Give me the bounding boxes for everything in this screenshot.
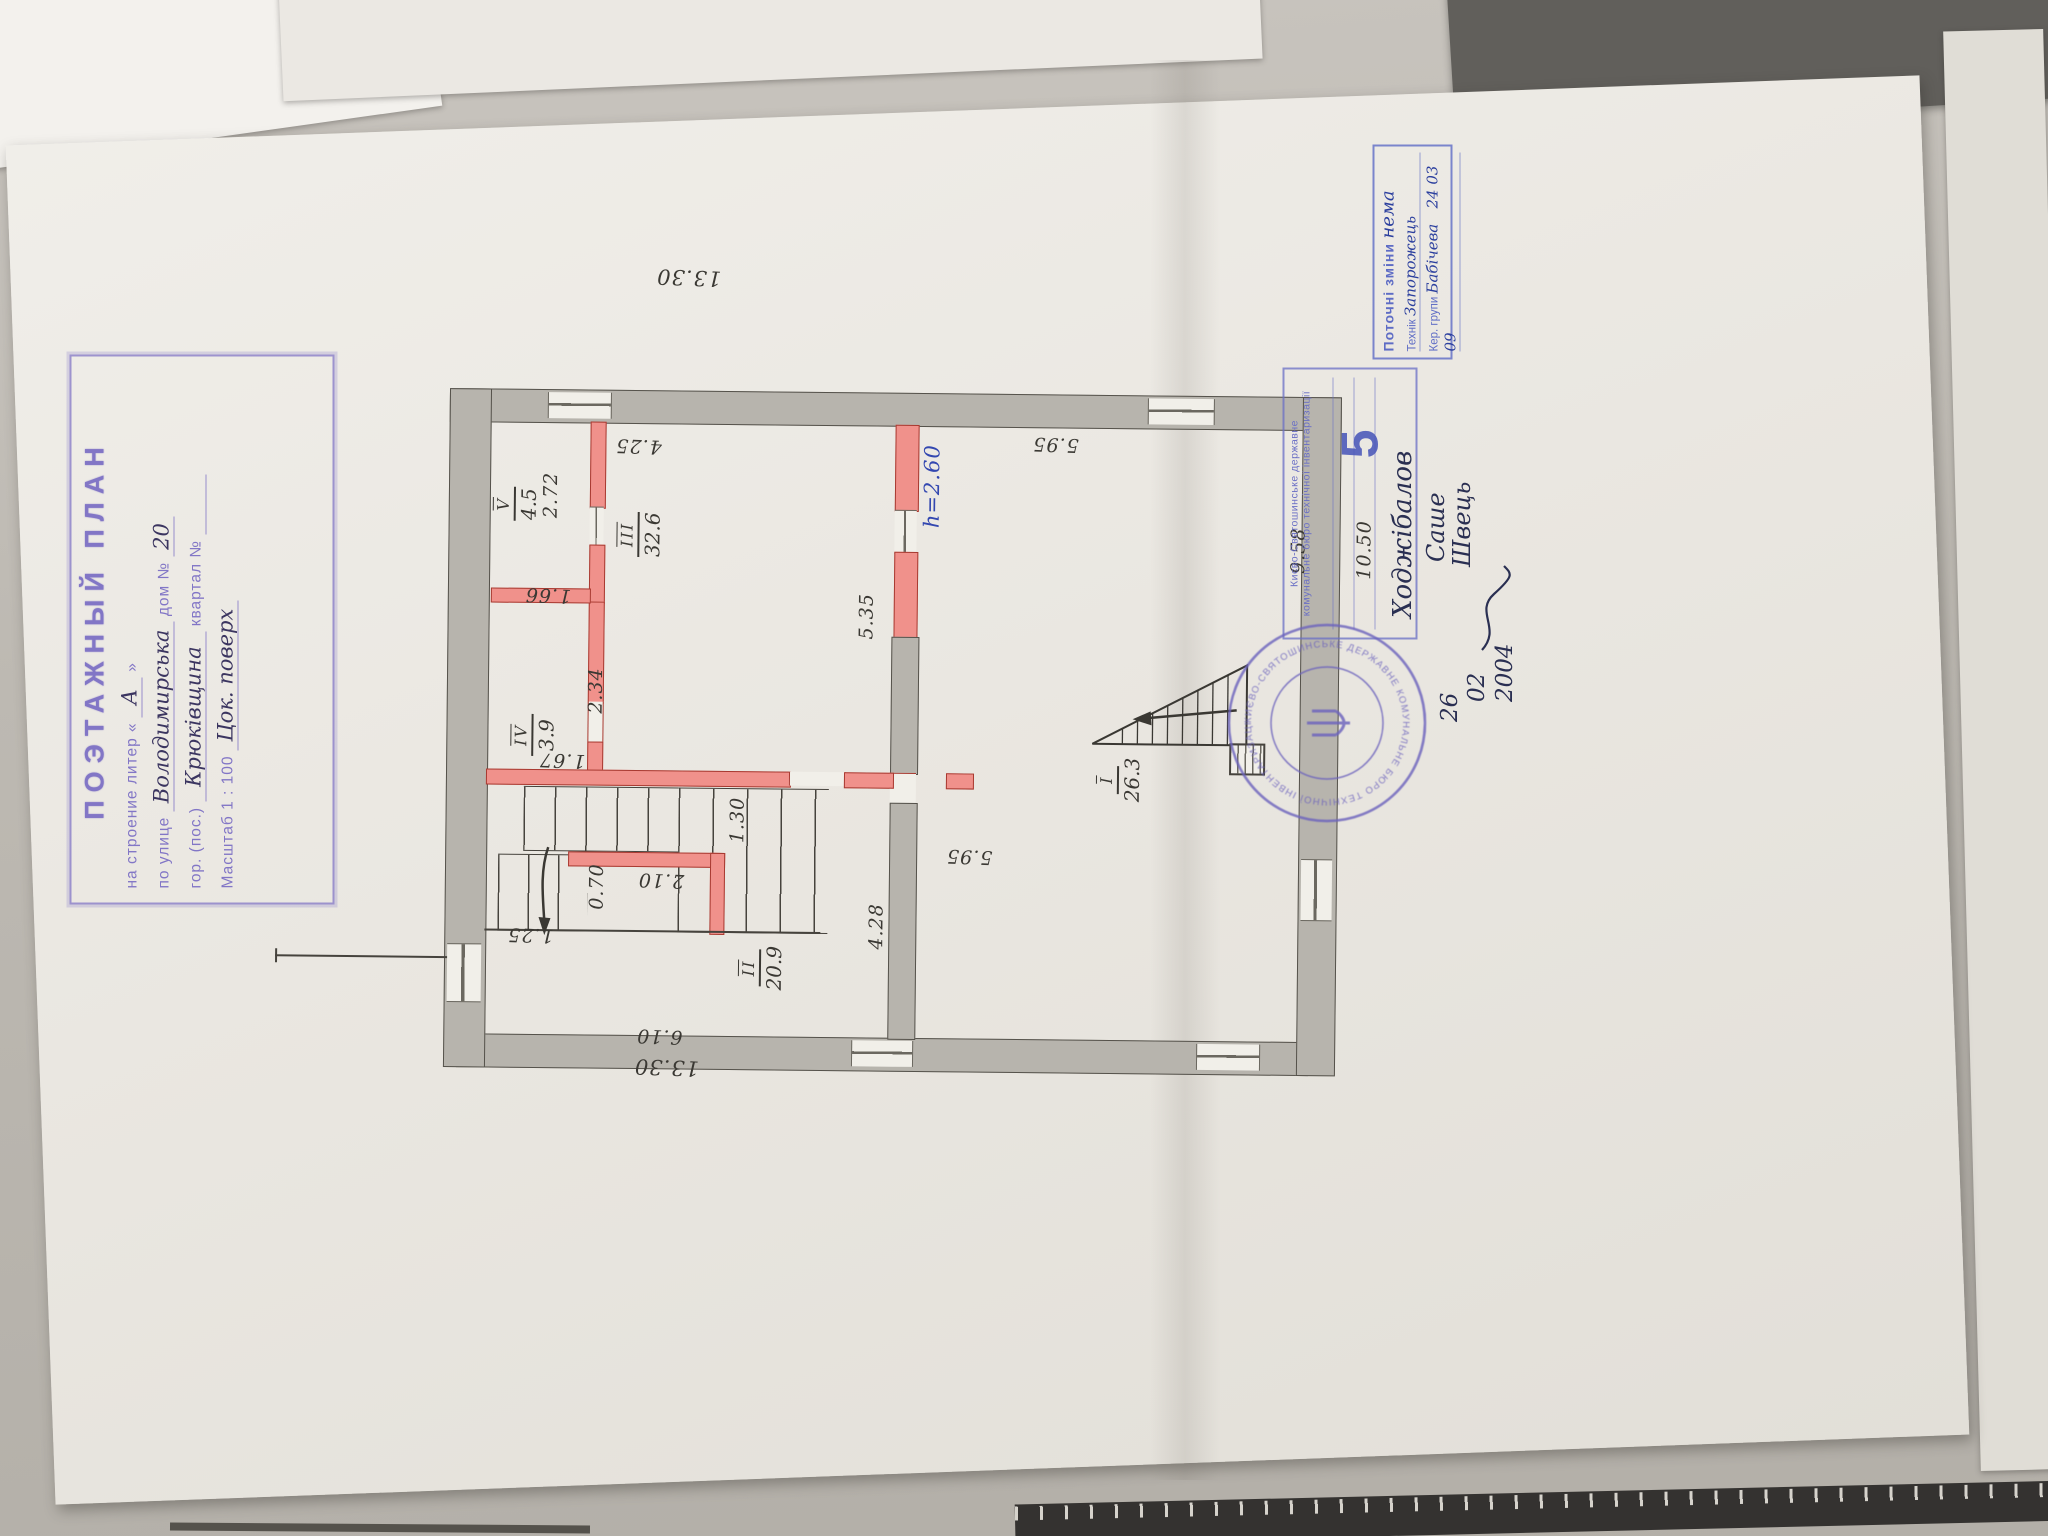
room-area: 32.6 bbox=[639, 512, 664, 557]
room-number: IV bbox=[511, 714, 533, 756]
dim-13-30-top: 13.30 bbox=[656, 264, 722, 290]
window-symbol bbox=[851, 1040, 913, 1067]
room-number: II bbox=[739, 950, 761, 987]
bti-date-year: 2004 bbox=[1492, 643, 1518, 702]
quarter-label: квартал № bbox=[188, 540, 205, 626]
dim-1-67: 1.67 bbox=[539, 748, 586, 772]
street-row: по улице Володимирська дом № 20 bbox=[150, 371, 175, 889]
dim-4-28: 4.28 bbox=[865, 903, 887, 950]
building-value: А bbox=[118, 677, 143, 717]
wall-segment bbox=[589, 545, 606, 604]
wall-segment bbox=[709, 853, 725, 935]
dim-6-10: 6.10 bbox=[636, 1024, 683, 1048]
manager-row: Кер. групи Бабічева 24 03 09 bbox=[1424, 153, 1461, 352]
room-number: III bbox=[617, 512, 639, 557]
room-number: V bbox=[494, 487, 516, 521]
window-symbol bbox=[447, 943, 482, 1002]
bti-date-day: 26 bbox=[1437, 693, 1463, 722]
window-symbol bbox=[1148, 398, 1215, 425]
manager-value: Бабічева bbox=[1424, 224, 1442, 294]
wall-segment bbox=[590, 422, 607, 509]
dim-2-72: 2.72 bbox=[540, 472, 562, 519]
wall-segment bbox=[895, 425, 920, 512]
scale-row: Масштаб 1 : 100 Цок. поверх bbox=[214, 371, 239, 889]
title-stamp-border: ПОЭТАЖНЫЙ ПЛАН на строение литер « А » п… bbox=[70, 355, 335, 905]
room-area: 20.9 bbox=[761, 946, 786, 991]
photo-frame: ПОЭТАЖНЫЙ ПЛАН на строение литер « А » п… bbox=[0, 0, 2048, 1536]
bti-org-line1: Києво-Святошинське державне bbox=[1289, 378, 1301, 630]
room-area: 4.5 bbox=[516, 488, 541, 520]
wall-segment bbox=[587, 742, 603, 772]
door-opening bbox=[789, 772, 846, 787]
stamp-title: ПОЭТАЖНЫЙ ПЛАН bbox=[80, 371, 111, 889]
scale-label: Масштаб 1 : 100 bbox=[220, 755, 237, 888]
room-label-v: V 4.5 bbox=[494, 487, 541, 521]
changes-stamp-border: Поточні зміни нема Технік Запорожець Кер… bbox=[1373, 145, 1453, 360]
room-area: 3.9 bbox=[533, 719, 558, 751]
round-stamp: КИЄВО-СВЯТОШИНСЬКЕ ДЕРЖАВНЕ КОМУНАЛЬНЕ Б… bbox=[1222, 618, 1432, 828]
bti-name1: Ходжібалов bbox=[1388, 451, 1418, 618]
bti-name2: Саше bbox=[1422, 492, 1450, 562]
dim-5-35: 5.35 bbox=[855, 593, 877, 640]
table-edge bbox=[170, 1523, 590, 1534]
dim-2-10: 2.10 bbox=[638, 868, 685, 892]
window-symbol bbox=[1196, 1044, 1260, 1071]
dimension-tick bbox=[275, 948, 277, 962]
changes-title: Поточні зміни bbox=[1381, 243, 1397, 351]
room-area: 26.3 bbox=[1119, 758, 1144, 803]
floor-note: Цок. поверх bbox=[214, 600, 239, 750]
wall-segment bbox=[890, 637, 919, 775]
window-symbol bbox=[1300, 859, 1332, 921]
trident-icon bbox=[1307, 711, 1350, 735]
room-label-ii: II 20.9 bbox=[739, 946, 786, 991]
changes-stamp: Поточні зміни нема Технік Запорожець Кер… bbox=[1373, 145, 1453, 360]
dim-5-95-bottom: 5.95 bbox=[946, 845, 993, 869]
bti-rule bbox=[1355, 378, 1376, 630]
room-number: I bbox=[1097, 765, 1119, 794]
city-label: гор. (пос.) bbox=[188, 807, 205, 889]
street-label: по улице bbox=[156, 817, 173, 889]
dim-1-30: 1.30 bbox=[726, 797, 748, 844]
background-paper-top bbox=[277, 0, 1262, 101]
dim-4-25: 4.25 bbox=[615, 434, 662, 458]
technician-row: Технік Запорожець bbox=[1402, 153, 1421, 352]
bti-org-line2: комунальне бюро технічної інвентаризації bbox=[1301, 378, 1313, 630]
wall-segment bbox=[844, 772, 894, 789]
dim-1-66: 1.66 bbox=[524, 583, 571, 607]
technician-label: Технік bbox=[1407, 319, 1419, 351]
wall-segment bbox=[893, 552, 918, 639]
dim-13-30-bottom: 13.30 bbox=[634, 1054, 700, 1080]
window-symbol bbox=[548, 392, 612, 419]
wall-segment bbox=[486, 768, 791, 787]
ruler-strip bbox=[1015, 1480, 2048, 1536]
technician-value: Запорожець bbox=[1402, 216, 1420, 316]
bti-date-month: 02 bbox=[1464, 673, 1490, 702]
window-symbol bbox=[894, 510, 916, 554]
dim-5-95-top: 5.95 bbox=[1032, 433, 1079, 457]
city-value: Крюківщина bbox=[182, 632, 207, 802]
wall-segment bbox=[887, 803, 917, 1040]
room-label-iii: III 32.6 bbox=[617, 512, 664, 557]
room-label-i: I 26.3 bbox=[1097, 757, 1144, 802]
bti-number: 5 bbox=[1331, 430, 1391, 459]
house-value: 20 bbox=[150, 517, 175, 557]
dim-1-25: 1.25 bbox=[507, 923, 554, 947]
building-close: » bbox=[124, 662, 141, 672]
bti-rule bbox=[1334, 378, 1355, 630]
wall-segment bbox=[946, 773, 974, 789]
window-symbol bbox=[589, 507, 603, 547]
bti-name3: Швець bbox=[1448, 482, 1476, 567]
changes-note: нема bbox=[1378, 190, 1399, 238]
height-note: h=2.60 bbox=[920, 444, 945, 528]
title-stamp: ПОЭТАЖНЫЙ ПЛАН на строение литер « А » п… bbox=[70, 355, 335, 905]
dim-0-70: 0.70 bbox=[586, 863, 608, 910]
bti-rule bbox=[1313, 378, 1334, 630]
house-label: дом № bbox=[156, 562, 173, 616]
city-row: гор. (пос.) Крюківщина квартал № bbox=[182, 371, 207, 889]
manager-label: Кер. групи bbox=[1429, 297, 1441, 352]
street-value: Володимирська bbox=[150, 621, 175, 811]
dim-2-34: 2.34 bbox=[585, 667, 607, 714]
building-row: на строение литер « А » bbox=[118, 371, 143, 889]
building-label: на строение литер « bbox=[124, 722, 141, 888]
